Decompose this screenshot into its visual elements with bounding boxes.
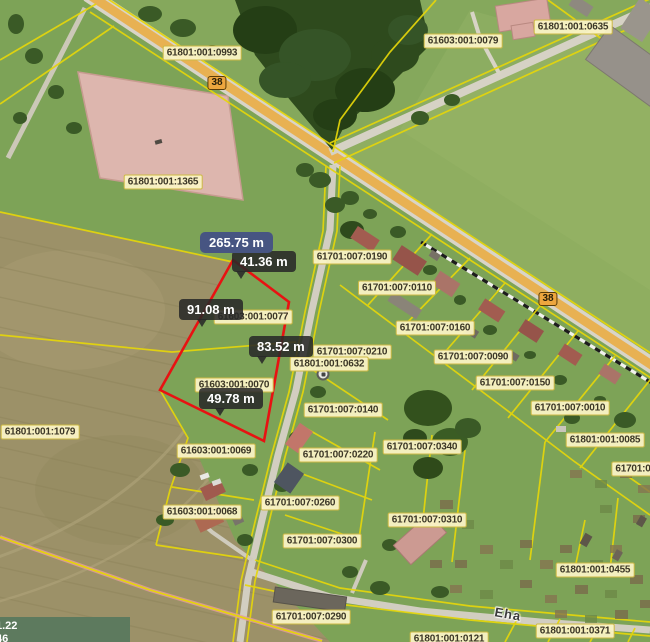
- measure-segment-tooltip: 41.36 m: [232, 251, 296, 272]
- road-number-badge: 38: [207, 76, 226, 90]
- parcel-code-label[interactable]: 61603:001:0079: [424, 34, 503, 49]
- parcel-code-label[interactable]: 61801:001:0455: [556, 563, 635, 578]
- parcel-code-label[interactable]: 61701:007:0310: [388, 513, 467, 528]
- parcel-code-label[interactable]: 61801:001:0993: [163, 46, 242, 61]
- measure-segment-tooltip: 49.78 m: [199, 388, 263, 409]
- road-number-badge: 38: [538, 292, 557, 306]
- parcel-code-label[interactable]: 61701:007:0150: [476, 376, 555, 391]
- parcel-code-label[interactable]: 61701:007:0260: [261, 496, 340, 511]
- parcel-code-label[interactable]: 61701:007:0190: [313, 250, 392, 265]
- parcel-code-label[interactable]: 61701:007:0010: [531, 401, 610, 416]
- parcel-code-label[interactable]: 61801:001:1365: [124, 175, 203, 190]
- measure-segment-tooltip: 83.52 m: [249, 336, 313, 357]
- measure-segment-value: 49.78 m: [207, 391, 255, 406]
- parcel-code-label[interactable]: 61701:007:0140: [304, 403, 383, 418]
- parcel-code-label[interactable]: 61701:007:0160: [396, 321, 475, 336]
- parcel-code-label[interactable]: 61603:001:0069: [177, 444, 256, 459]
- parcel-code-label[interactable]: 61701:007:0110: [358, 281, 436, 296]
- parcel-code-label[interactable]: 61701:007:0300: [283, 534, 362, 549]
- coordinate-line-1: 1.22: [0, 620, 130, 633]
- parcel-code-label[interactable]: 61801:001:0632: [290, 357, 369, 372]
- parcel-code-label[interactable]: 61801:001:0085: [566, 433, 645, 448]
- measure-segment-value: 91.08 m: [187, 302, 235, 317]
- parcel-code-label[interactable]: 61701:0: [611, 462, 650, 477]
- measure-segment-tooltip: 91.08 m: [179, 299, 243, 320]
- measure-segment-value: 41.36 m: [240, 254, 288, 269]
- parcel-code-label[interactable]: 61701:007:0220: [299, 448, 378, 463]
- parcel-code-label[interactable]: 61701:007:0340: [383, 440, 462, 455]
- parcel-code-label[interactable]: 61801:001:0635: [534, 20, 613, 35]
- parcel-code-label[interactable]: 61801:001:0121: [410, 632, 489, 642]
- parcel-code-label[interactable]: 61801:001:0371: [536, 624, 615, 639]
- coordinate-line-2: 46: [0, 633, 130, 642]
- measure-segment-value: 83.52 m: [257, 339, 305, 354]
- parcel-code-label[interactable]: 61603:001:0068: [163, 505, 242, 520]
- parcel-code-label[interactable]: 61701:007:0290: [272, 610, 351, 625]
- measure-total-badge: 265.75 m: [200, 232, 273, 253]
- coordinate-readout: 1.22 46: [0, 617, 130, 642]
- map-canvas[interactable]: 265.75 m Eha 1.22 46 61801:001:099361603…: [0, 0, 650, 642]
- parcel-code-label[interactable]: 61701:007:0090: [434, 350, 513, 365]
- parcel-code-label[interactable]: 61801:001:1079: [1, 425, 80, 440]
